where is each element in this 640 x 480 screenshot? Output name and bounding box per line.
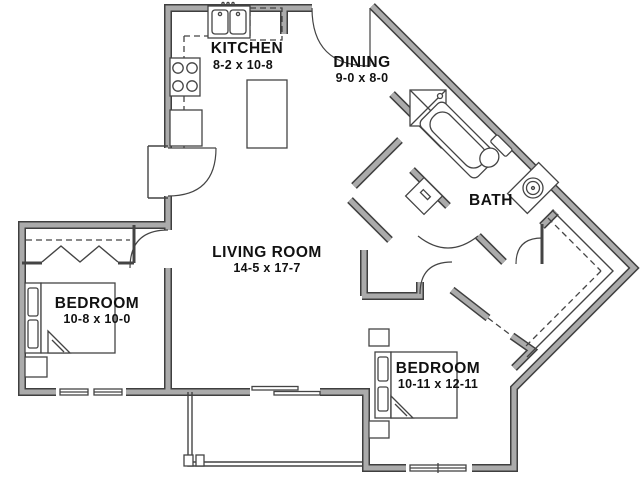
kitchen-label: KITCHEN [211,40,283,57]
nightstand-left [25,357,47,377]
vanity-sink [406,178,443,215]
stove [170,58,200,96]
bedroom-left-label: BEDROOM [55,295,139,312]
walkin-closet-shelf-dashed [488,218,601,347]
kitchen-island [247,80,287,148]
bath-label: BATH [469,192,513,209]
bedroom-right-dims: 10-11 x 12-11 [398,377,478,391]
wall-alcove [148,146,168,198]
dining-dims: 9-0 x 8-0 [336,71,389,85]
bedroom-left-dims: 10-8 x 10-0 [63,312,130,326]
bedroom-right-door-arc [420,262,452,294]
kitchen-side-door-arc [168,148,216,196]
bedroom-left-closet-walls [22,225,134,263]
refrigerator [250,8,282,40]
kitchen-sink [208,2,250,38]
nightstand-right-bottom [369,421,389,438]
floor-plan: KITCHEN 8-2 x 10-8 DINING 9-0 x 8-0 LIVI… [0,0,640,480]
bedroom-left-closet-bifold [42,246,118,262]
living-room-label: LIVING ROOM [212,244,322,261]
bathtub [418,100,499,181]
bath-sink [508,163,559,214]
kitchen-dims: 8-2 x 10-8 [213,58,273,72]
balcony-post-2 [196,455,204,466]
nightstand-right-top [369,329,389,346]
sliding-door-panel-2 [274,392,320,396]
walkin-closet-door-arc [516,238,542,264]
dishwasher [170,110,202,146]
floor-plan-page: KITCHEN 8-2 x 10-8 DINING 9-0 x 8-0 LIVI… [0,0,640,480]
living-room-dims: 14-5 x 17-7 [233,261,300,275]
balcony-railing [188,392,362,466]
balcony-post-1 [184,455,193,466]
dining-label: DINING [333,54,390,71]
bedroom-right-label: BEDROOM [396,360,480,377]
bedroom-left-door-arc [130,230,168,268]
bath-door-arc [418,236,478,248]
sliding-door-panel-1 [252,387,298,391]
